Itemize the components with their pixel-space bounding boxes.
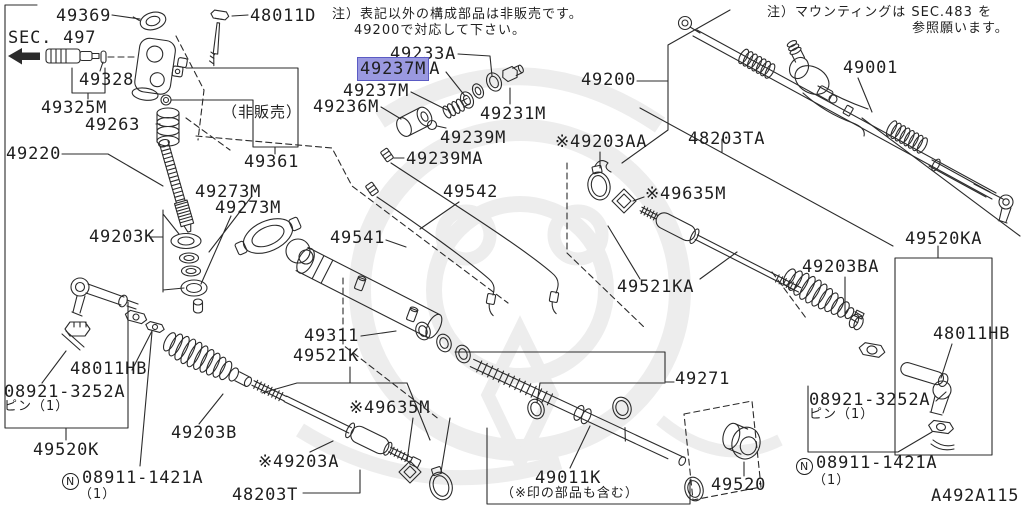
part-label-49239MA: 49239MA <box>406 151 483 168</box>
part-label-49237MA-selected[interactable]: 49237MA <box>357 61 440 78</box>
part-label-49239M: 49239M <box>440 130 506 147</box>
part-label-49203AA: ※49203AA <box>555 134 647 151</box>
part-label-49203B: 49203B <box>171 425 237 442</box>
qty-note-right: （1） <box>813 474 850 489</box>
part-label-49520K: 49520K <box>33 442 99 459</box>
part-label-48011D: 48011D <box>250 8 316 25</box>
sec-497-reference: SEC. 497 <box>8 30 96 47</box>
part-label-49203A: ※49203A <box>258 454 339 471</box>
part-label-49237MA-tail: A <box>429 59 440 79</box>
part-label-49011K: 49011K <box>535 470 601 487</box>
part-label-49521KA: 49521KA <box>617 279 694 296</box>
circled-n-icon: N <box>796 458 813 475</box>
note-mounting: 注）マウンティングは SEC.483 を <box>767 6 992 21</box>
part-label-48203T: 48203T <box>232 487 298 504</box>
part-label-49520: 49520 <box>711 477 766 494</box>
part-label-48011HB-left: 48011HB <box>70 361 147 378</box>
part-label-49369: 49369 <box>56 8 111 25</box>
part-label-48011HB-right: 48011HB <box>933 326 1010 343</box>
part-label-49311: 49311 <box>304 328 359 345</box>
part-label-49203K: 49203K <box>89 229 155 246</box>
part-label-49273M-2: 49273M <box>215 200 281 217</box>
part-label-49521K: 49521K <box>293 348 359 365</box>
note-nonsale: 注）表記以外の構成部品は非販売です。 <box>332 8 583 23</box>
part-label-49541: 49541 <box>330 230 385 247</box>
part-label-49200: 49200 <box>581 72 636 89</box>
part-label-08911-1421A-right: N08911-1421A <box>796 455 937 475</box>
part-label-49361: 49361 <box>244 154 299 171</box>
pin-qty-note-right: ピン（1） <box>809 408 874 423</box>
part-label-49236M: 49236M <box>313 99 379 116</box>
qty-note-left: （1） <box>79 488 116 503</box>
not-sold-note: （非販売） <box>222 105 302 120</box>
part-label-49203BA: 49203BA <box>802 259 879 276</box>
parts-diagram: 注）表記以外の構成部品は非販売です。 49200で対応して下さい。 注）マウンテ… <box>0 0 1024 510</box>
part-label-49220: 49220 <box>6 146 61 163</box>
selected-highlight[interactable]: 49237M <box>357 57 429 81</box>
left-box-parts-drawing <box>62 331 84 350</box>
circled-n-icon-2: N <box>62 473 79 490</box>
note-nonsale-2: 49200で対応して下さい。 <box>354 24 526 39</box>
pin-qty-note-left: ピン（1） <box>4 400 69 415</box>
part-label-49520KA: 49520KA <box>905 231 982 248</box>
part-label-49001: 49001 <box>843 60 898 77</box>
part-label-49263: 49263 <box>85 117 140 134</box>
part-label-49231M: 49231M <box>480 106 546 123</box>
part-label-49635M-right: ※49635M <box>645 186 726 203</box>
part-label-49271: 49271 <box>675 371 730 388</box>
part-label-48203TA: 48203TA <box>688 131 765 148</box>
includes-marked-parts-note: （※印の部品も含む） <box>501 487 639 502</box>
part-label-49328: 49328 <box>79 72 134 89</box>
steering-gear-assembly-drawing <box>679 17 1014 224</box>
drawing-code: A492A115 <box>931 488 1019 505</box>
part-label-49635M-left: ※49635M <box>349 400 430 417</box>
part-label-49542: 49542 <box>443 184 498 201</box>
note-mounting-2: 参照願います。 <box>912 22 1009 37</box>
